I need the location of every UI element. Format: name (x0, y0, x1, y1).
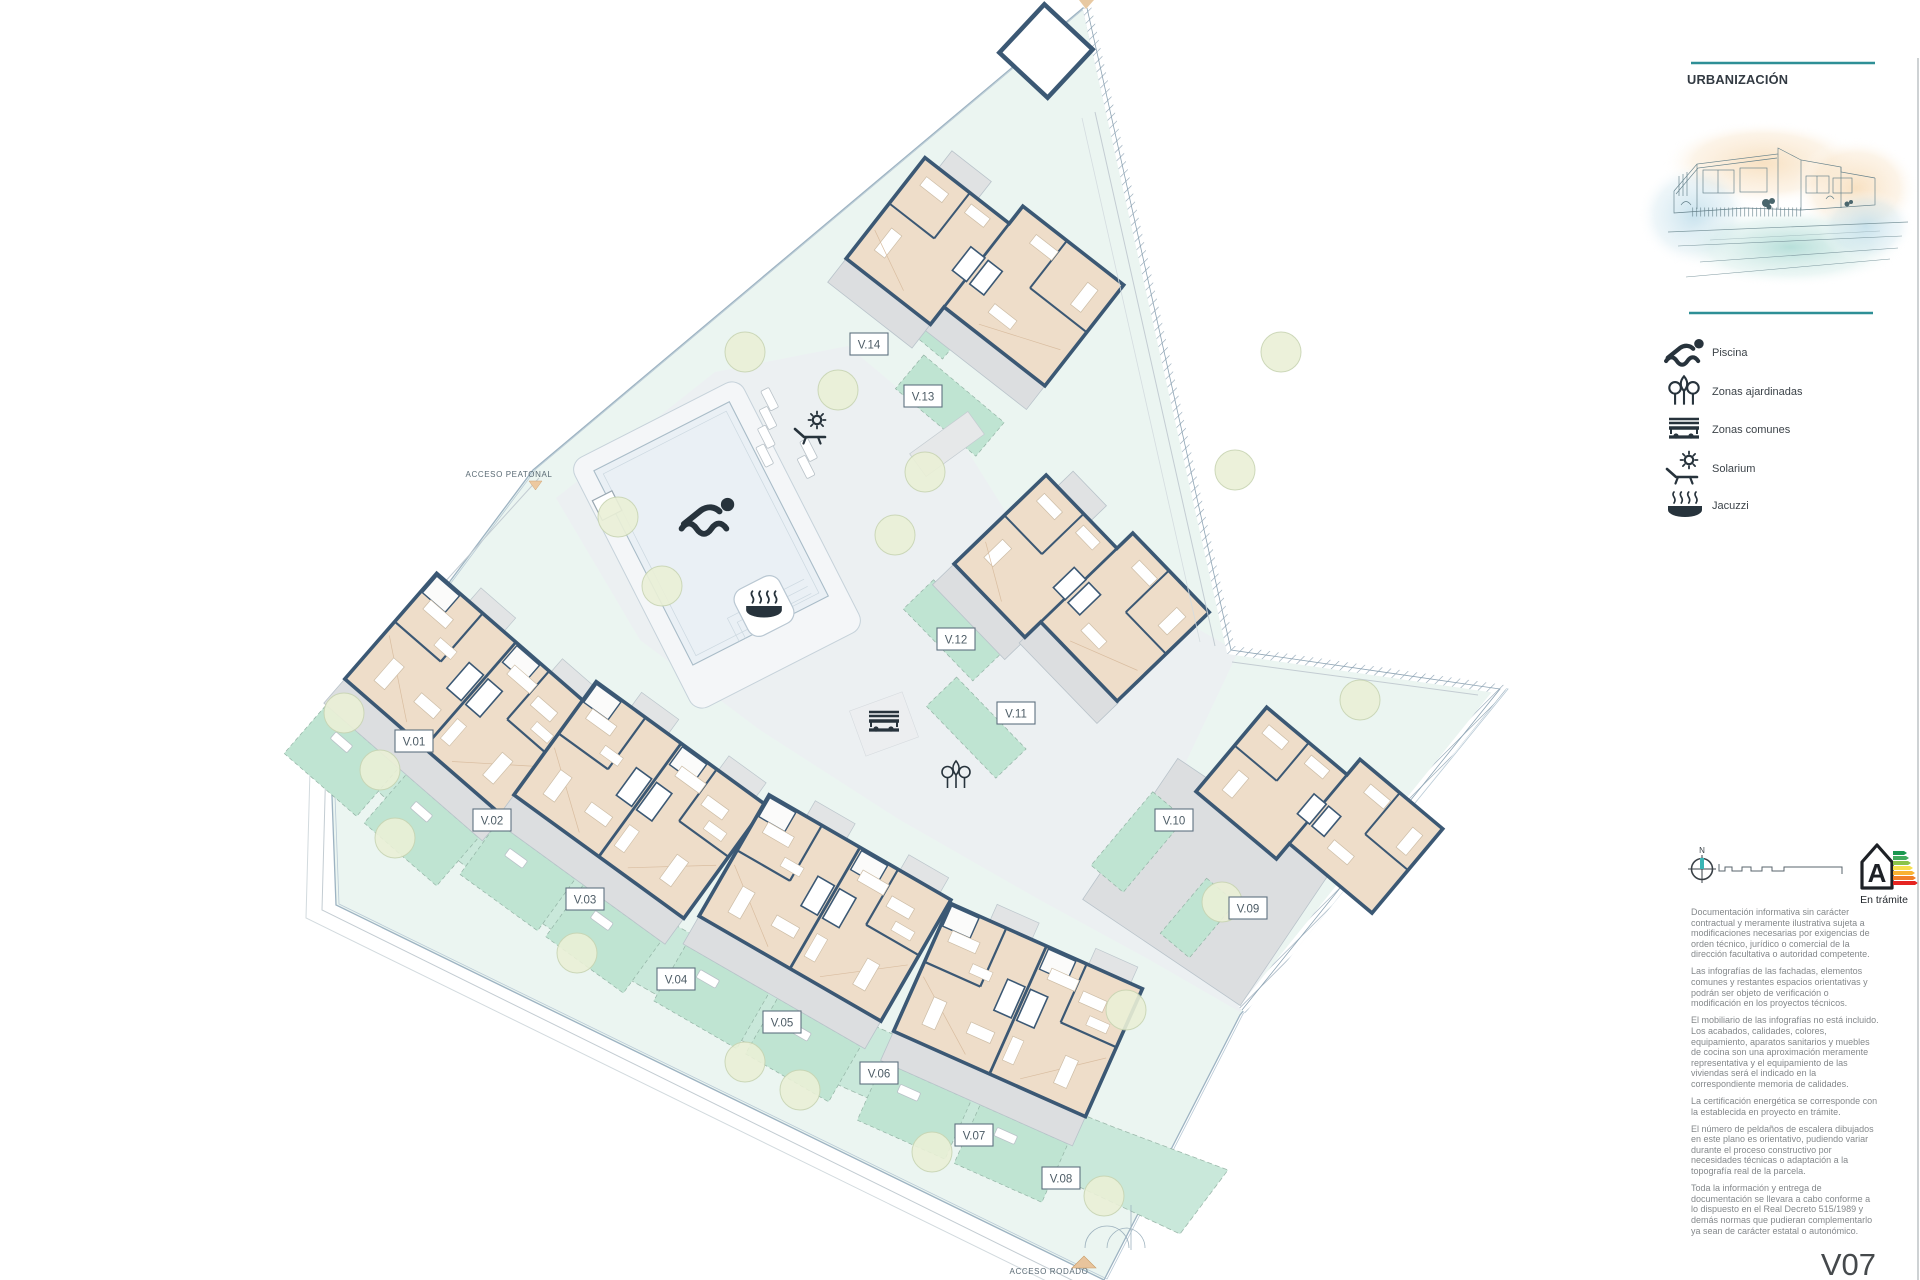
svg-text:V.02: V.02 (481, 816, 504, 828)
svg-text:ACCESO PEATONAL: ACCESO PEATONAL (466, 470, 553, 479)
svg-text:En trámite: En trámite (1860, 894, 1908, 906)
svg-text:URBANIZACIÓN: URBANIZACIÓN (1687, 72, 1788, 87)
svg-text:V.14: V.14 (858, 340, 881, 352)
svg-text:Jacuzzi: Jacuzzi (1712, 500, 1749, 512)
svg-text:V07: V07 (1821, 1247, 1876, 1280)
svg-text:V.12: V.12 (945, 635, 968, 647)
svg-text:V.01: V.01 (403, 737, 426, 749)
svg-text:A: A (1868, 858, 1887, 888)
svg-text:Piscina: Piscina (1712, 347, 1748, 359)
svg-text:V.10: V.10 (1163, 816, 1186, 828)
svg-text:Zonas ajardinadas: Zonas ajardinadas (1712, 386, 1803, 398)
svg-text:V.08: V.08 (1050, 1174, 1073, 1186)
svg-text:Solarium: Solarium (1712, 463, 1755, 475)
svg-text:V.03: V.03 (574, 895, 597, 907)
svg-text:V.04: V.04 (665, 975, 688, 987)
svg-text:V.11: V.11 (1005, 709, 1027, 721)
svg-text:Zonas comunes: Zonas comunes (1712, 424, 1791, 436)
svg-text:ACCESO RODADO: ACCESO RODADO (1010, 1267, 1089, 1276)
svg-text:N: N (1699, 846, 1705, 855)
svg-text:V.05: V.05 (771, 1018, 794, 1030)
svg-text:V.09: V.09 (1237, 904, 1260, 916)
svg-text:V.07: V.07 (963, 1131, 986, 1143)
svg-text:V.13: V.13 (912, 392, 935, 404)
svg-text:V.06: V.06 (868, 1069, 891, 1081)
